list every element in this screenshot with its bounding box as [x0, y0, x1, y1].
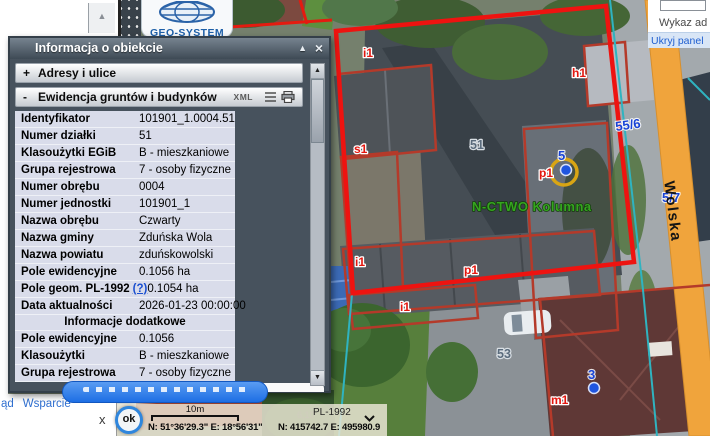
scale-label: 10m [151, 405, 239, 414]
background-scroll-up[interactable]: ▲ [88, 3, 115, 33]
table-row: Klasoużytki EGiB B - mieszkaniowe [15, 145, 235, 162]
table-row: Grupa rejestrowa 7 - osoby fizyczne [15, 162, 235, 179]
geo-system-logo: GEO-SYSTEM [141, 0, 233, 38]
map-label-p1: p1 [539, 166, 553, 180]
expand-icon[interactable]: + [23, 66, 38, 80]
support-link[interactable]: Wsparcie [23, 398, 71, 410]
app-window: i1s1h1p1i1p1i1m151535355/65/7N-CTWO Kolu… [0, 0, 710, 436]
scroll-up-icon[interactable]: ▲ [311, 64, 324, 79]
map-label-h1: h1 [572, 66, 586, 80]
section-addresses[interactable]: + Adresy i ulice [15, 63, 303, 83]
table-row: Nazwa powiatu zduńskowolski [15, 247, 235, 264]
toolbar-drag-handle[interactable] [121, 0, 141, 37]
coordinates-readout: N: 51°36'29.3" E: 18°56'31" N: 415742.7 … [148, 422, 380, 433]
map-label-i1: i1 [355, 255, 365, 269]
map-label-53: 53 [497, 347, 511, 361]
address-point-dot[interactable] [561, 165, 572, 176]
help-link[interactable]: (?) [133, 283, 148, 295]
globe-icon [142, 1, 232, 28]
map-label-i1: i1 [363, 46, 373, 60]
xml-export-button[interactable]: XML [234, 92, 253, 102]
object-info-panel: Informacja o obiekcie ▲ × + Adresy i uli… [8, 36, 331, 393]
search-input[interactable] [660, 0, 706, 11]
table-row: Numer działki 51 [15, 128, 235, 145]
map-label-5: 5 [558, 148, 565, 163]
map-label-i1: i1 [400, 300, 410, 314]
scrollbar-thumb[interactable] [311, 79, 324, 143]
footer-link-partial[interactable]: ąd [1, 398, 14, 410]
ok-button[interactable]: ok [115, 406, 143, 434]
background-window: ▲ [0, 0, 121, 37]
map-label-m1: m1 [551, 393, 569, 407]
collapse-minus-icon[interactable]: - [23, 90, 38, 104]
table-row: Nazwa gminy Zduńska Wola [15, 230, 235, 247]
map-label-n-ctwo-kolumna: N-CTWO Kolumna [472, 199, 592, 214]
right-sidebar: Wykaz ad Ukryj panel [648, 0, 710, 48]
table-row: Numer obrębu 0004 [15, 179, 235, 196]
table-row: Numer jednostki 101901_1 [15, 196, 235, 213]
panel-scrollbar[interactable]: ▲ ▼ [310, 63, 325, 386]
close-icon[interactable]: × [315, 38, 323, 59]
geo-coordinates: N: 51°36'29.3" E: 18°56'31" [148, 422, 263, 433]
section-egib[interactable]: - Ewidencja gruntów i budynków XML [15, 87, 303, 107]
panel-footer-button[interactable] [62, 381, 268, 403]
list-icon[interactable] [264, 91, 277, 103]
table-row: Data aktualności 2026-01-23 00:00:00 [15, 298, 235, 315]
attribute-table: Identyfikator 101901_1.0004.51 Numer dzi… [15, 111, 235, 315]
list-link[interactable]: Wykaz ad [659, 17, 707, 29]
plane-coordinates: N: 415742.7 E: 495980.9 [278, 422, 380, 433]
table-row: Nazwa obrębu Czwarty [15, 213, 235, 230]
collapse-icon[interactable]: ▲ [298, 38, 307, 59]
table-row: Klasoużytki B - mieszkaniowe [15, 348, 235, 365]
map-label-51: 51 [470, 138, 484, 152]
panel-titlebar[interactable]: Informacja o obiekcie ▲ × [10, 38, 329, 59]
crs-selector[interactable]: PL-1992 [313, 407, 351, 418]
extra-info-table: Informacje dodatkowe Pole ewidencyjne 0.… [15, 315, 235, 382]
table-row: Grupa rejestrowa 7 - osoby fizyczne [15, 365, 235, 382]
address-point-dot[interactable] [589, 383, 600, 394]
panel-title: Informacja o obiekcie [35, 41, 163, 55]
hide-panel-button[interactable]: Ukryj panel [648, 32, 710, 48]
map-label-s1: s1 [354, 142, 368, 156]
map-label-3: 3 [588, 367, 595, 382]
scroll-down-icon[interactable]: ▼ [311, 370, 324, 385]
table-row: Pole ewidencyjne 0.1056 [15, 331, 235, 348]
section-addresses-label: Adresy i ulice [38, 66, 116, 80]
print-icon[interactable] [281, 91, 295, 103]
scale-bar: 10m [151, 405, 239, 421]
page-background-strip [0, 37, 8, 394]
footer-close-button[interactable]: x [99, 414, 106, 426]
table-row: Pole geom. PL-1992(?) 0.1054 ha [15, 281, 235, 298]
section-egib-label: Ewidencja gruntów i budynków [38, 90, 217, 104]
table-row: Pole ewidencyjne 0.1056 ha [15, 264, 235, 281]
status-bar: ok 10m PL-1992 N: 51°36'29.3" E: 18°56'3… [117, 404, 387, 436]
table-row: Identyfikator 101901_1.0004.51 [15, 111, 235, 128]
map-label-p1: p1 [464, 263, 478, 277]
extra-info-header: Informacje dodatkowe [15, 315, 235, 331]
